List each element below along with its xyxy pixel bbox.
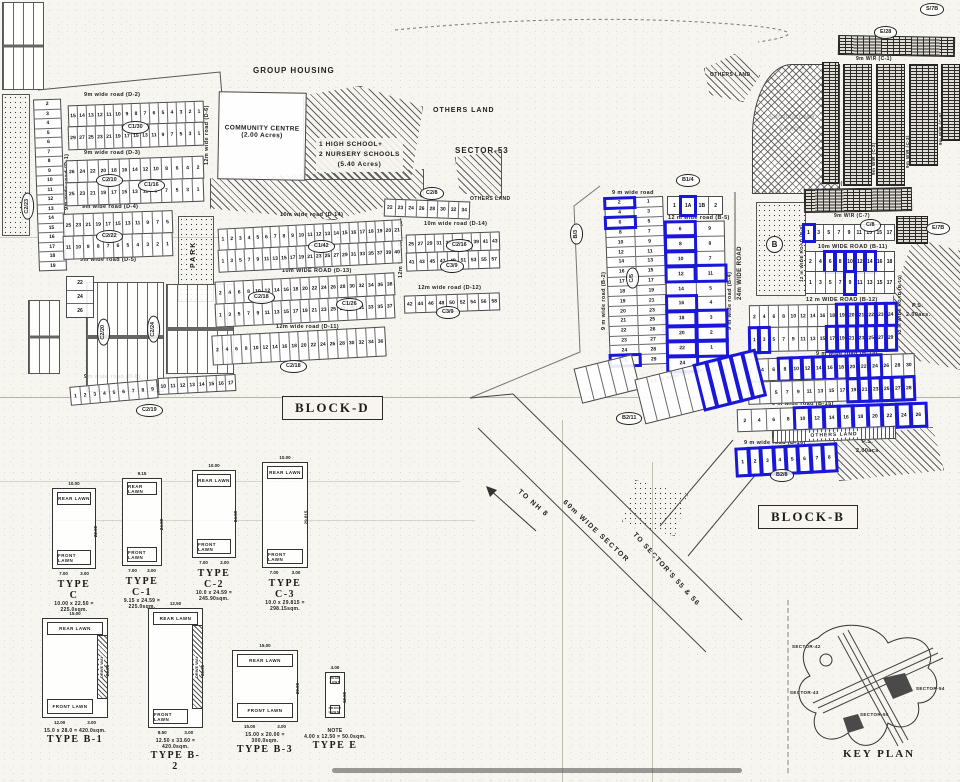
road-label-d14b: 10m wide road (D-14) bbox=[424, 221, 487, 227]
type-c1-diagram: 9.15 24.59 REAR LAWN FRONT LAWN 7.003.00… bbox=[122, 478, 162, 610]
plot-cell: 25 bbox=[67, 183, 78, 205]
dense-plot-strip bbox=[876, 64, 905, 186]
dim-front: 7.00 bbox=[59, 571, 68, 576]
dim-width: 15.00 bbox=[69, 611, 80, 616]
plot-cell: 58 bbox=[489, 293, 499, 309]
road-ref-oval: C2/23 bbox=[21, 193, 34, 220]
plot-cell: 13 bbox=[815, 380, 827, 401]
plot-cell: 10 bbox=[151, 158, 162, 179]
dim-height: 29.815 bbox=[304, 511, 309, 525]
plot-cell: 30 bbox=[903, 354, 914, 375]
dim-drive: 3.00 bbox=[147, 568, 156, 573]
plot-cell: 26 bbox=[67, 161, 78, 182]
rear-lawn-label: REAR LAWN bbox=[197, 474, 231, 487]
road-ref-oval: C2/18 bbox=[280, 360, 307, 373]
dim-front: 7.00 bbox=[199, 560, 208, 565]
type-b1-diagram: 15.00 28.00 REAR LAWN FRONT LAWN DRIVE W… bbox=[42, 618, 108, 745]
plot-cell: 8 bbox=[161, 158, 172, 179]
plot-cell: 15 bbox=[826, 380, 838, 401]
plot-cell: 17 bbox=[885, 272, 894, 293]
road-ref-oval: C3/9 bbox=[436, 306, 460, 319]
school-line-2: 2 NURSERY SCHOOLS bbox=[319, 150, 400, 160]
plot-cell: 21 bbox=[393, 220, 402, 240]
dim-width: 9.15 bbox=[138, 471, 147, 476]
others-land-strip-label: OTHERS LAND bbox=[808, 431, 859, 439]
plot-cell: 46 bbox=[426, 296, 437, 312]
plot-cell: 3 bbox=[814, 225, 824, 240]
dense-plot-strip bbox=[843, 64, 872, 186]
block-d-title: BLOCK-D bbox=[282, 396, 383, 420]
road-label-c1: 9m W\R (C-1) bbox=[856, 56, 892, 62]
road-ref-oval: E/7B bbox=[926, 222, 950, 235]
dim-width: 12.50 bbox=[170, 601, 181, 606]
dim-front: 15.00 bbox=[244, 724, 255, 729]
plot-cell-highlighted: 3 bbox=[760, 328, 770, 351]
road-ref-oval: C1/26 bbox=[336, 298, 363, 311]
dim-height: 22.50 bbox=[93, 525, 98, 536]
plot-cell: 53 bbox=[469, 251, 480, 268]
dim-drive: 3.00 bbox=[87, 720, 96, 725]
drive-way-strip: DRIVE WAY bbox=[192, 625, 203, 709]
plot-cell: 12 bbox=[140, 158, 151, 179]
type-b3-diagram: 15.00 20.00 REAR LAWN FRONT LAWN 15.003.… bbox=[232, 650, 298, 755]
plot-column: 98711543211A bbox=[695, 222, 726, 370]
plot-cell: 9 bbox=[695, 222, 724, 237]
rear-lawn-label: REAR LAWN bbox=[57, 492, 91, 505]
plot-cell: 1 bbox=[195, 102, 204, 122]
plot-cell: 23 bbox=[395, 200, 406, 216]
type-dims: 10.0 x 29.815 = 298.15sqm. bbox=[262, 600, 308, 612]
road-ref-oval: C2/19 bbox=[136, 404, 163, 417]
dim-width: 10.00 bbox=[68, 481, 79, 486]
plot-cell: 5 bbox=[771, 382, 783, 403]
plot-cell: 11 bbox=[798, 327, 808, 350]
plot-cell: 6 bbox=[769, 306, 779, 327]
road-label-d6: 12m wide road (D-6) bbox=[204, 105, 210, 165]
front-lawn-label: FRONT LAWN bbox=[153, 709, 188, 724]
plot-cell: 2 bbox=[750, 306, 760, 327]
dim-width: 15.00 bbox=[259, 643, 270, 648]
dim-drive: 3.00 bbox=[277, 724, 286, 729]
rear-lawn-label: REAR LAWN bbox=[267, 466, 303, 479]
road-ref-oval: C1/42 bbox=[308, 240, 335, 253]
school-line-1: 1 HIGH SCHOOL+ bbox=[319, 140, 400, 150]
drive-way-strip: DRIVE WAY bbox=[97, 635, 108, 699]
plot-cell: 22 bbox=[67, 277, 93, 291]
plot-cell: 21 bbox=[88, 182, 99, 204]
school-label: 1 HIGH SCHOOL+ 2 NURSERY SCHOOLS (5.40 A… bbox=[316, 138, 403, 172]
plot-cell: 17 bbox=[885, 225, 894, 240]
road-label-d2: 9m wide road (D-2) bbox=[84, 92, 140, 98]
dense-plot-strip bbox=[909, 64, 938, 166]
dense-plot-strip bbox=[822, 62, 839, 184]
road-ref-oval: C2/16 bbox=[446, 239, 473, 252]
type-name: TYPE B-2 bbox=[148, 750, 203, 772]
plot-cell: 19 bbox=[40, 261, 66, 270]
key-plan-sketch bbox=[788, 608, 958, 768]
road-ref-oval: C2/18 bbox=[248, 291, 275, 304]
plot-cell-highlighted: 12 bbox=[666, 267, 695, 282]
rear-lawn-label: REAR LAWN bbox=[127, 482, 157, 495]
road-label-24m: 24m WIDE ROAD bbox=[737, 246, 743, 300]
rear-lawn-label: REAR LAWN bbox=[153, 612, 198, 625]
plot-cell: 43 bbox=[490, 232, 499, 249]
dense-plot-strip bbox=[838, 35, 955, 57]
open-space-dotted bbox=[622, 480, 688, 536]
dim-width: 10.00 bbox=[279, 455, 290, 460]
road-ref-oval: B/3 bbox=[570, 224, 583, 245]
plot-cell-highlighted: 9 bbox=[846, 272, 856, 293]
plot-cell: 24 bbox=[406, 200, 417, 216]
fold-line bbox=[562, 420, 563, 782]
plot-cell-highlighted: 24 bbox=[886, 304, 895, 325]
plot-cell: 9 bbox=[789, 327, 799, 350]
plot-cell: 5 bbox=[172, 179, 183, 201]
block-b-circle-marker: B bbox=[766, 236, 783, 253]
others-land-label: OTHERS LAND bbox=[433, 107, 495, 114]
site-plan-sheet: GROUP HOUSING COMMUNITY CENTRE (2.00 Acr… bbox=[0, 0, 960, 782]
plot-cell: 9 bbox=[793, 381, 805, 402]
plot-cell-highlighted: 14 bbox=[865, 252, 875, 271]
plot-cell: 13 bbox=[808, 327, 818, 350]
plot-cell: 32 bbox=[448, 202, 459, 218]
front-lawn-label: FRONT LAWN bbox=[267, 549, 303, 564]
plot-cell: 4 bbox=[760, 306, 770, 327]
plot-cell: 23 bbox=[77, 183, 88, 205]
type-name: TYPE C-1 bbox=[122, 576, 162, 598]
plot-cell: 28 bbox=[892, 354, 904, 375]
road-ref-oval: C2/20 bbox=[97, 319, 110, 346]
plot-cell: 57 bbox=[489, 250, 499, 267]
dim-front: 7.00 bbox=[128, 568, 137, 573]
plot-cell-highlighted: 11 bbox=[696, 266, 725, 281]
type-c3-diagram: 10.00 29.815 REAR LAWN FRONT LAWN 7.003.… bbox=[262, 462, 308, 612]
type-name: TYPE E bbox=[290, 740, 380, 751]
plot-row: 1011121314151617 bbox=[158, 374, 237, 395]
dense-plot-strip bbox=[804, 187, 912, 213]
plot-cell: 7 bbox=[834, 225, 844, 240]
plot-cell: 54 bbox=[468, 294, 479, 310]
plot-cell: 55 bbox=[479, 251, 490, 268]
type-name: TYPE B-1 bbox=[42, 734, 108, 745]
plot-cell-highlighted: 1 bbox=[804, 225, 814, 240]
plot-cell-highlighted: 2 bbox=[605, 198, 633, 209]
road-ref-oval: C/5 bbox=[626, 268, 639, 289]
dim-front: 12.00 bbox=[54, 720, 65, 725]
plot-cell-highlighted: 1 bbox=[697, 341, 726, 356]
plot-row: 1357911131517192123252729 bbox=[749, 325, 896, 353]
dim-height: 12.50 bbox=[342, 692, 347, 703]
block-b-title: BLOCK-B bbox=[758, 505, 858, 529]
community-centre-parcel: COMMUNITY CENTRE (2.00 Acres) bbox=[217, 91, 307, 181]
plot-cell: 2 bbox=[709, 197, 722, 214]
plot-cell: 4 bbox=[752, 409, 767, 430]
road-ref-oval: B1/4 bbox=[676, 174, 700, 187]
type-dims: 15.00 x 20.00 = 300.0sqm. bbox=[232, 732, 298, 744]
type-dims: 12.50 x 33.60 = 420.0sqm. bbox=[148, 738, 203, 750]
dim-height: 24.59 bbox=[233, 511, 238, 522]
group-housing-label: GROUP HOUSING bbox=[253, 66, 335, 75]
drive-way-label: DRIVE WAY bbox=[99, 656, 104, 678]
sector-road-label: 60m WIDE SECTOR bbox=[561, 499, 630, 564]
plot-cell: 24 bbox=[67, 291, 93, 305]
dim-drive: 3.00 bbox=[220, 560, 229, 565]
scan-smudge bbox=[332, 768, 742, 773]
others-land-small-label: OTHERS LAND bbox=[470, 196, 511, 202]
plot-cell: 2 bbox=[806, 252, 816, 271]
to-sectors-label: TO SECTOR'S 55 & 56 bbox=[631, 531, 701, 607]
plot-cell: 5 bbox=[163, 211, 173, 232]
plot-cell: 9 bbox=[148, 380, 158, 398]
plot-cell: 8 bbox=[695, 236, 724, 251]
plot-grid bbox=[2, 2, 44, 90]
plot-cell: 40 bbox=[393, 241, 402, 262]
plot-cell: 42 bbox=[405, 296, 416, 312]
type-dims: 10.0 x 24.59 = 245.90sqm. bbox=[192, 590, 236, 602]
dim-width: 4.00 bbox=[331, 665, 340, 670]
plot-cell: 2 bbox=[193, 157, 203, 178]
plot-grid bbox=[28, 300, 60, 374]
plot-cell: 6 bbox=[172, 157, 183, 178]
key-plan bbox=[788, 608, 958, 768]
plot-column: 681012141618202224 bbox=[666, 222, 698, 370]
front-lawn-label: FRONT LAWN bbox=[197, 539, 231, 554]
plot-cell-highlighted: 6 bbox=[606, 218, 634, 229]
plot-cell: 34 bbox=[459, 202, 469, 218]
type-e-diagram: 4.00 12.50 REAR LAWN FRONT LAWN NOTE 4.0… bbox=[325, 672, 345, 751]
plot-row: 1357911131517 bbox=[805, 271, 895, 294]
plot-row: 123456789 bbox=[69, 379, 158, 406]
plot-column: 222426 bbox=[67, 277, 93, 317]
front-lawn-label: FRONT LAWN bbox=[57, 550, 91, 565]
road-label-d3: 9m wide road (D-3) bbox=[84, 150, 140, 156]
dim-drive: 3.00 bbox=[80, 571, 89, 576]
rear-lawn-label: REAR LAWN bbox=[237, 654, 293, 667]
plot-row: 1357911131517 bbox=[803, 224, 895, 241]
type-name: TYPE C-2 bbox=[192, 568, 236, 590]
plot-cell: 5 bbox=[696, 281, 725, 296]
road-ref-oval: C2/22 bbox=[96, 230, 123, 243]
plot-cell: 52 bbox=[458, 294, 469, 310]
plot-row: 2223242628303234 bbox=[384, 199, 471, 220]
plot-cell: 1 bbox=[806, 272, 816, 293]
plot-cell: 37 bbox=[385, 295, 395, 317]
plot-cell: 43 bbox=[417, 253, 428, 270]
plot-cell: 11 bbox=[804, 381, 816, 402]
plot-cell: 7 bbox=[779, 328, 789, 351]
plot-cell: 1 bbox=[195, 123, 204, 145]
plot-cell: 41 bbox=[407, 253, 418, 270]
plot-cell: 14 bbox=[808, 305, 818, 326]
to-nh8-label: TO NH 8 bbox=[516, 488, 549, 518]
dim-height: 20.00 bbox=[295, 683, 300, 694]
type-name: TYPE B-3 bbox=[232, 744, 298, 755]
road-ref-oval: E/28 bbox=[874, 26, 897, 39]
plot-cell-highlighted: 26 bbox=[911, 404, 925, 425]
plot-row: 1357911131517192123252728 bbox=[748, 376, 916, 405]
school-area: (5.40 Acres) bbox=[319, 160, 400, 170]
plot-cell: 45 bbox=[427, 253, 438, 270]
plot-cell: 6 bbox=[767, 409, 782, 430]
plot-cell: 44 bbox=[415, 296, 426, 312]
road-ref-oval: C3/9 bbox=[440, 260, 464, 273]
type-c2-diagram: 10.00 24.59 REAR LAWN FRONT LAWN 7.003.0… bbox=[192, 470, 236, 602]
type-name: TYPE C-3 bbox=[262, 578, 308, 600]
drive-way-label: DRIVE WAY bbox=[194, 656, 199, 678]
dim-height: 24.59 bbox=[159, 519, 164, 530]
front-lawn-label: FRONT LAWN bbox=[127, 547, 157, 562]
plot-cell: 56 bbox=[479, 294, 490, 310]
dim-front: 7.00 bbox=[270, 570, 279, 575]
plot-cell: 36 bbox=[376, 328, 386, 356]
plot-cell: 26 bbox=[417, 201, 428, 217]
type-name: TYPE C bbox=[52, 579, 96, 601]
plot-cell-highlighted: 8 bbox=[823, 444, 836, 470]
road-ref-oval: C2/8 bbox=[420, 187, 444, 200]
plot-cell: 28 bbox=[427, 201, 438, 217]
road-ref-oval: C2/24 bbox=[147, 316, 160, 343]
road-ref-oval: S/7B bbox=[920, 3, 944, 16]
front-lawn-label: FRONT LAWN bbox=[47, 699, 93, 714]
dim-drive: 3.00 bbox=[184, 730, 193, 735]
rear-lawn-label: REAR LAWN bbox=[330, 676, 340, 684]
primary-school-hatch bbox=[893, 238, 960, 370]
plot-cell: 7 bbox=[782, 381, 794, 402]
plot-cell: 13 bbox=[865, 272, 875, 293]
plot-cell: 38 bbox=[385, 273, 395, 294]
road-ref-oval: C/8 bbox=[860, 219, 881, 232]
plot-cell: 9 bbox=[844, 225, 854, 240]
plot-cell-highlighted: 28 bbox=[903, 377, 914, 398]
plot-cell: 18 bbox=[885, 252, 894, 271]
front-lawn-label: FRONT LAWN bbox=[330, 705, 340, 714]
plot-cell-highlighted: 29 bbox=[886, 326, 895, 349]
dense-plot-strip bbox=[941, 64, 960, 141]
dense-plot-strip bbox=[896, 216, 928, 244]
plot-cell: 22 bbox=[385, 200, 396, 216]
plot-cell: 24 bbox=[77, 161, 88, 182]
plot-cell: 3 bbox=[182, 179, 193, 201]
plot-row: 252321191715131197531 bbox=[66, 178, 205, 207]
plot-cell: 3 bbox=[816, 272, 826, 293]
plot-cell: 5 bbox=[824, 225, 834, 240]
dim-front: 8.50 bbox=[158, 730, 167, 735]
plot-row: 11A1B2 bbox=[667, 196, 723, 215]
road-ref-oval: B2/8 bbox=[770, 469, 794, 482]
road-ref-oval: C1/30 bbox=[122, 121, 149, 134]
plot-cell: 26 bbox=[67, 304, 93, 317]
plot-cell-highlighted: 24 bbox=[870, 355, 882, 376]
road-ref-oval: B2/11 bbox=[616, 412, 642, 425]
plot-column: 2345678910111213141516171819 bbox=[34, 100, 66, 271]
rear-lawn-label: REAR LAWN bbox=[47, 622, 103, 635]
others-land-ne-hatch bbox=[704, 54, 760, 102]
plot-cell: 14 bbox=[130, 159, 141, 180]
plot-cell: 2 bbox=[738, 410, 753, 431]
plot-cell: 1 bbox=[193, 179, 203, 201]
plot-cell: 29 bbox=[640, 354, 668, 364]
plot-grid-b-mid: 681012141618202224 98711543211A bbox=[665, 220, 728, 371]
plot-cell: 1 bbox=[163, 233, 173, 255]
plot-cell: 16 bbox=[818, 305, 828, 326]
plot-cell: 15 bbox=[119, 181, 130, 203]
type-c-diagram: 10.00 22.50 REAR LAWN FRONT LAWN 7.003.0… bbox=[52, 488, 96, 613]
front-lawn-label: FRONT LAWN bbox=[237, 703, 293, 718]
plot-cell: 17 bbox=[226, 375, 235, 390]
dim-drive: 3.00 bbox=[292, 570, 301, 575]
plot-cell-highlighted: 1A bbox=[682, 197, 696, 214]
road-label-c7: 9m W\R (C-7) bbox=[834, 213, 870, 219]
type-b2-diagram: 12.50 33.60 REAR LAWN FRONT LAWN DRIVE W… bbox=[148, 608, 203, 772]
plot-cell: 10 bbox=[789, 305, 799, 326]
plot-cell: 30 bbox=[438, 201, 449, 217]
plot-cell: 1B bbox=[696, 197, 710, 214]
dim-width: 10.00 bbox=[208, 463, 219, 468]
road-ref-oval: C2/10 bbox=[96, 174, 123, 187]
plot-cell: 15 bbox=[875, 272, 885, 293]
plot-cell: 12 bbox=[798, 305, 808, 326]
road-label-d12: 12m wide road (D-12) bbox=[418, 285, 481, 291]
road-ref-oval: C1/16 bbox=[138, 179, 165, 192]
others-land-hatch bbox=[455, 150, 502, 198]
plot-cell: 4 bbox=[182, 157, 193, 178]
plot-cell: 5 bbox=[826, 272, 836, 293]
plot-cell: 8 bbox=[779, 306, 789, 327]
